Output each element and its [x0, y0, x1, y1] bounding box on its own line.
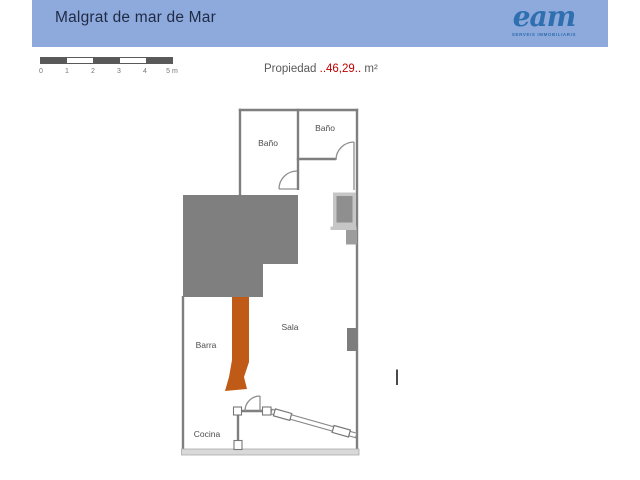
page: Malgrat de mar de Mar eam SERVEIS IMMOBI…: [0, 0, 640, 480]
door-arc-bath-right: [336, 142, 354, 160]
bar-counter-shape: [225, 297, 249, 391]
solid-mass: [183, 195, 298, 297]
mullion: [263, 407, 272, 415]
mullion: [234, 441, 242, 450]
glazing-mullion: [332, 425, 350, 437]
storefront-glazing: [271, 408, 358, 439]
window-fill: [337, 196, 353, 223]
room-label-bano-right: Baño: [315, 123, 335, 133]
room-label-barra: Barra: [196, 340, 217, 350]
glazing-mullion: [273, 409, 291, 421]
wall-panel-lower: [347, 328, 357, 351]
wall-column: [346, 230, 357, 245]
room-label-sala: Sala: [281, 322, 298, 332]
wall-bottom-band: [182, 449, 360, 455]
room-label-cocina: Cocina: [194, 429, 220, 439]
room-label-bano-left: Baño: [258, 138, 278, 148]
window-shaft-upper: [331, 193, 358, 245]
floorplan-drawing: [0, 0, 640, 480]
door-arc-entrance: [245, 396, 260, 411]
mullion: [234, 407, 242, 415]
door-arc-bath-left: [279, 171, 297, 189]
window-sill: [331, 227, 357, 231]
